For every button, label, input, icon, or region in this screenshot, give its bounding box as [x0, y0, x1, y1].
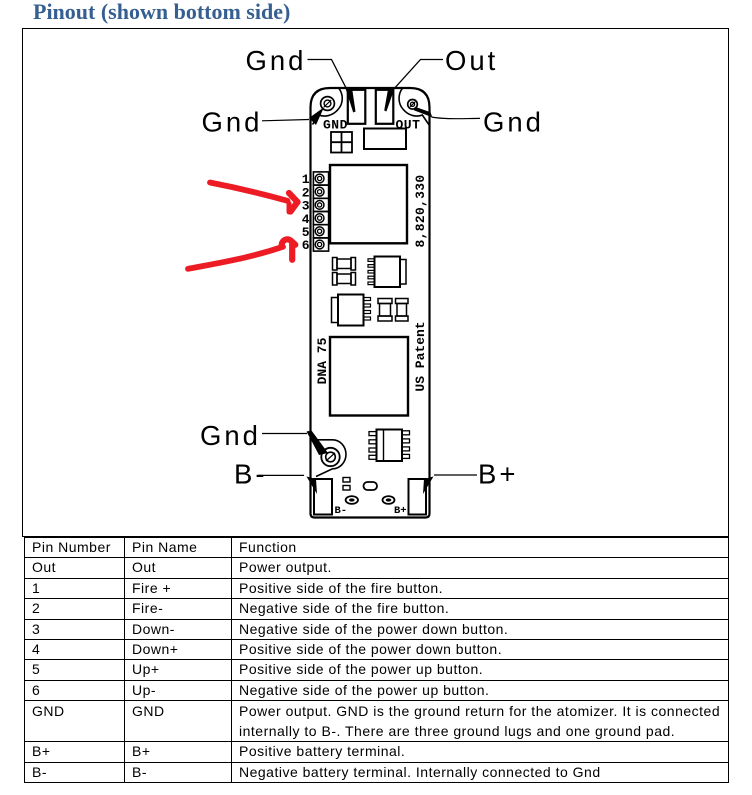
svg-text:8,820,330: 8,820,330	[413, 175, 428, 248]
svg-text:B+: B+	[394, 505, 407, 517]
svg-text:B+: B+	[478, 459, 518, 490]
svg-text:Gnd: Gnd	[246, 45, 307, 76]
svg-text:B-: B-	[335, 505, 348, 517]
svg-text:DNA 75: DNA 75	[315, 337, 330, 384]
svg-text:Gnd: Gnd	[483, 107, 544, 138]
svg-text:US Patent: US Patent	[413, 321, 428, 391]
svg-text:GND: GND	[323, 118, 348, 133]
svg-text:B-: B-	[234, 459, 268, 490]
svg-text:Gnd: Gnd	[200, 420, 261, 451]
svg-text:OUT: OUT	[396, 118, 421, 133]
svg-text:Out: Out	[445, 45, 498, 76]
svg-text:6: 6	[302, 238, 310, 253]
svg-text:Gnd: Gnd	[202, 107, 263, 138]
